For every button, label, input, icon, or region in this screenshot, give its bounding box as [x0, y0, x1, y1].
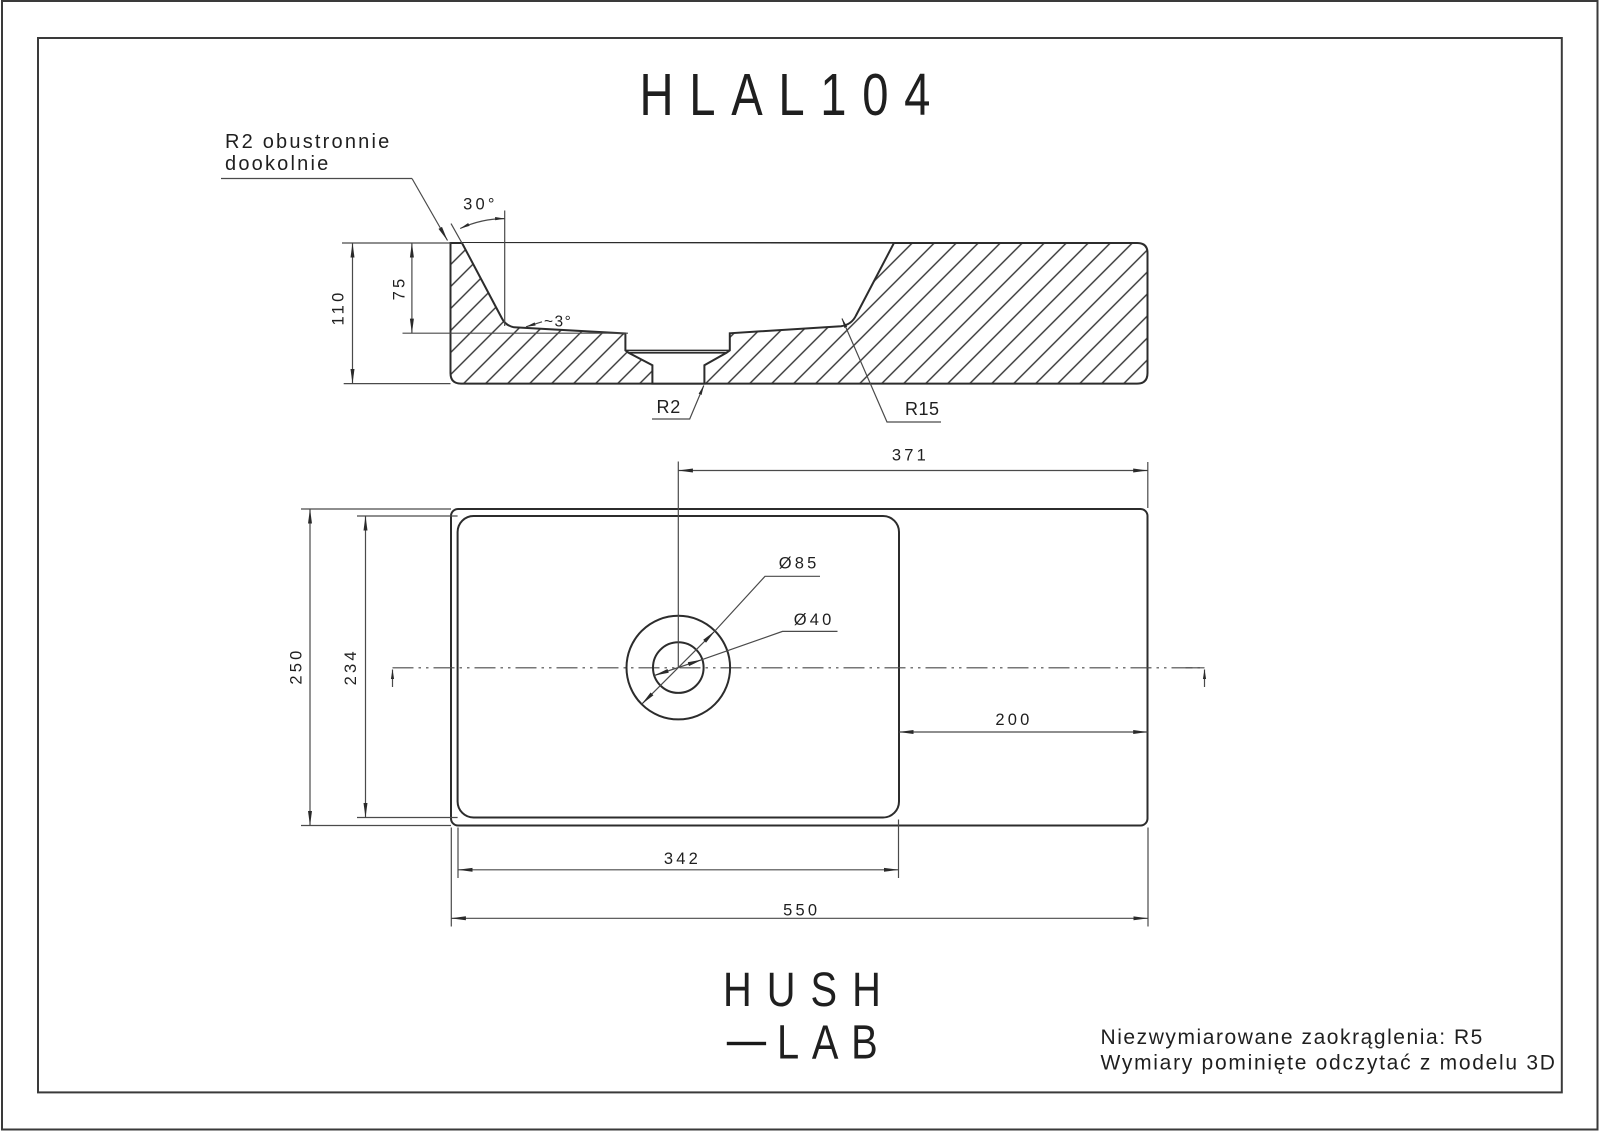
svg-text:Wymiary pominięte odczytać z m: Wymiary pominięte odczytać z modelu 3D [1101, 1052, 1557, 1075]
svg-text:R2: R2 [657, 397, 682, 417]
svg-text:HLAL104: HLAL104 [640, 63, 947, 128]
svg-text:75: 75 [391, 276, 409, 301]
svg-text:342: 342 [664, 850, 701, 868]
svg-text:Ø85: Ø85 [779, 555, 820, 573]
svg-text:234: 234 [342, 648, 360, 685]
svg-text:110: 110 [330, 290, 348, 326]
svg-text:200: 200 [995, 711, 1032, 729]
svg-text:371: 371 [892, 447, 929, 465]
svg-text:30°: 30° [463, 196, 498, 214]
svg-text:250: 250 [288, 647, 306, 684]
svg-text:550: 550 [783, 902, 820, 920]
svg-text:dookolnie: dookolnie [225, 153, 330, 175]
svg-text:R2 obustronnie: R2 obustronnie [225, 131, 391, 153]
svg-text:LAB: LAB [777, 1016, 890, 1070]
svg-text:R15: R15 [905, 399, 940, 419]
svg-text:Ø40: Ø40 [794, 611, 835, 629]
svg-text:HUSH: HUSH [723, 963, 896, 1017]
svg-text:Niezwymiarowane zaokrąglenia:: Niezwymiarowane zaokrąglenia: R5 [1101, 1026, 1484, 1049]
svg-text:~3°: ~3° [544, 314, 572, 331]
